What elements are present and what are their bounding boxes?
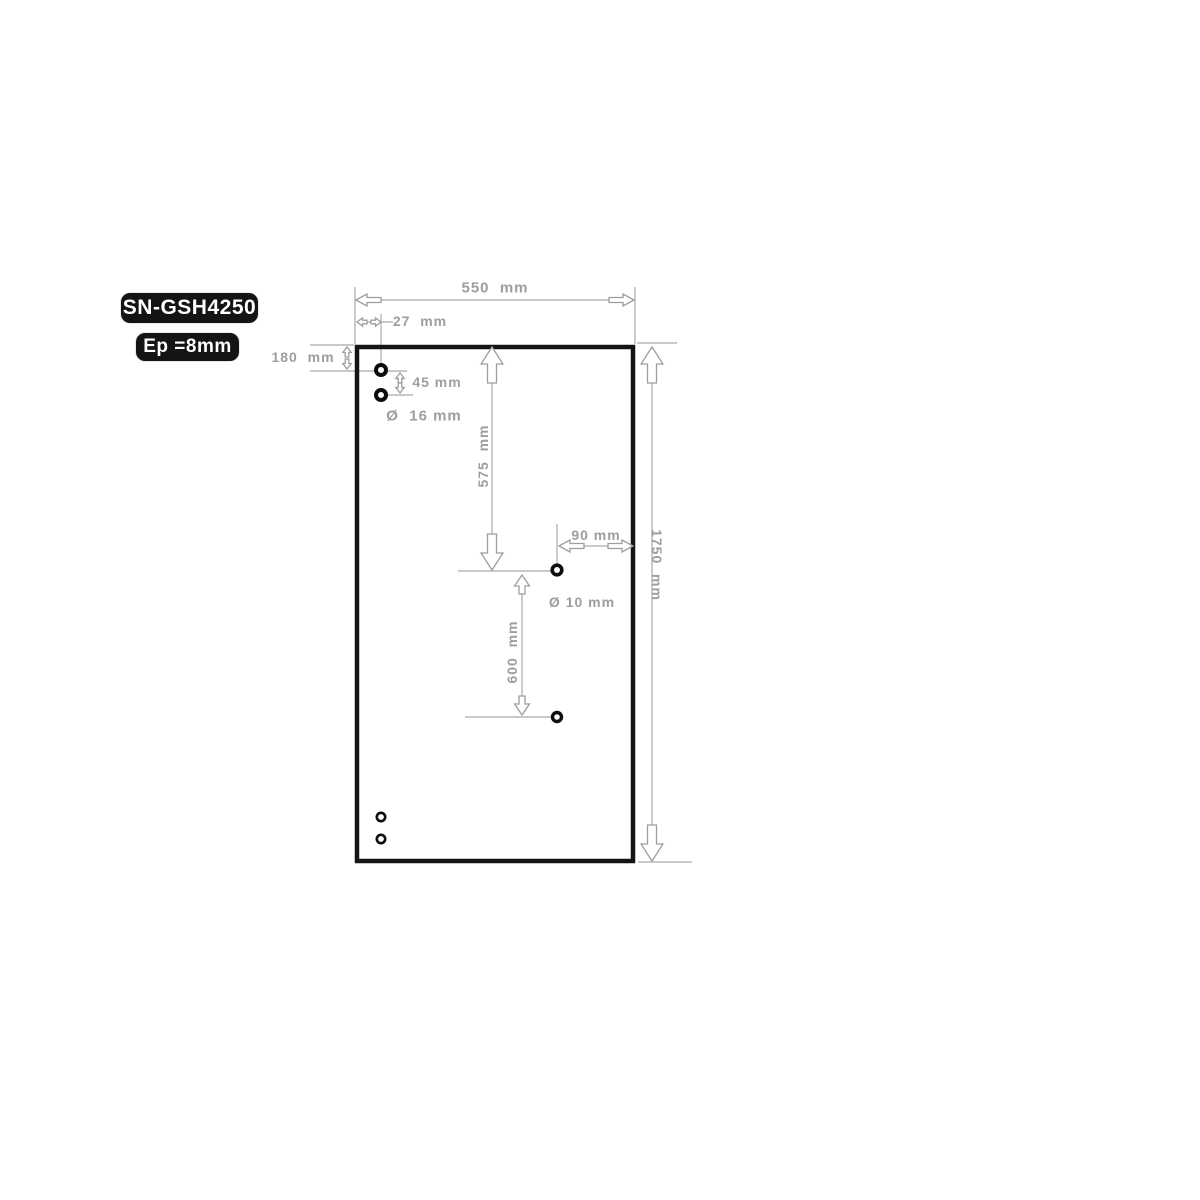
dim-label-offset-27: 27 mm (393, 314, 447, 328)
hole-bottom-1 (377, 813, 385, 821)
hole-lock-upper (552, 565, 562, 575)
dim-arrow-180-up (343, 347, 351, 357)
dim-arrow-180-down (343, 359, 351, 369)
dim-label-width-550: 550 mm (461, 281, 528, 296)
dim-label-hole-spacing-45: 45 mm (412, 375, 461, 389)
dim-arrow-600-down (515, 696, 530, 715)
dim-arrow-575-down (481, 534, 503, 570)
dim-arrow-575-up (481, 347, 503, 383)
dim-label-diameter-10: Ø 10 mm (549, 595, 615, 609)
dim-arrow-27-left (357, 318, 367, 326)
dim-arrow-1750-down (641, 825, 663, 861)
dim-label-top-offset-180: 180 mm (271, 350, 334, 364)
dim-label-span-600: 600 mm (505, 620, 519, 683)
dim-arrow-45-down (396, 383, 404, 393)
model-badge: SN-GSH4250 (121, 293, 258, 323)
dim-arrow-550-right (609, 294, 634, 306)
dim-label-height-1750: 1750 mm (650, 529, 664, 601)
hole-bottom-2 (377, 835, 385, 843)
dim-arrow-27-right (371, 318, 381, 326)
dim-arrow-600-up (515, 575, 530, 594)
thickness-badge: Ep =8mm (136, 333, 239, 361)
hole-top-1 (376, 365, 386, 375)
dim-label-offset-90: 90 mm (571, 528, 620, 542)
dim-arrow-550-left (356, 294, 381, 306)
dim-arrow-1750-up (641, 347, 663, 383)
dim-label-diameter-16: Ø 16 mm (386, 409, 462, 424)
hole-top-2 (376, 390, 386, 400)
hole-lock-lower (553, 713, 562, 722)
dim-arrow-45-up (396, 373, 404, 383)
glass-door-drawing: SN-GSH4250 Ep =8mm 550 mm 27 mm 180 mm 4… (0, 0, 1200, 1200)
dim-label-span-575: 575 mm (476, 424, 490, 487)
